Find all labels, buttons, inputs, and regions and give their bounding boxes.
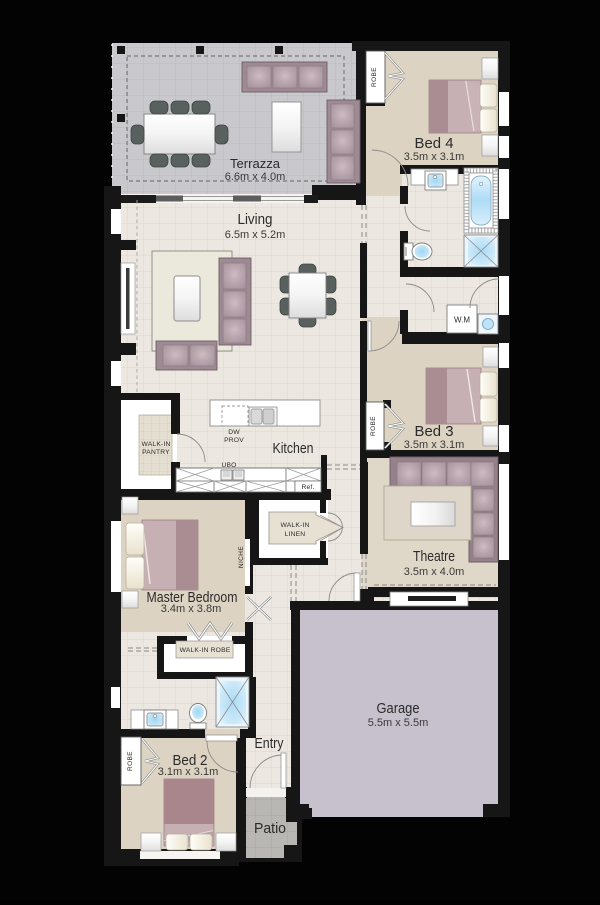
svg-text:PROV: PROV [224,437,244,444]
svg-text:Living: Living [238,211,273,228]
svg-text:3.4m x 3.8m: 3.4m x 3.8m [161,603,222,615]
svg-text:DW: DW [228,429,240,436]
svg-text:Terrazza: Terrazza [230,156,281,171]
svg-text:3.5m x 4.0m: 3.5m x 4.0m [404,566,465,578]
svg-text:W.M: W.M [454,316,470,325]
svg-text:LINEN: LINEN [285,531,306,538]
svg-text:5.5m x 5.5m: 5.5m x 5.5m [368,717,429,729]
svg-text:Garage: Garage [377,700,420,717]
svg-text:Bed 3: Bed 3 [415,423,454,440]
svg-text:Ref.: Ref. [301,484,314,491]
svg-text:WALK-IN: WALK-IN [280,522,309,529]
svg-text:WALK-IN: WALK-IN [141,441,170,448]
svg-text:Patio: Patio [254,820,286,837]
svg-text:ROBE: ROBE [370,416,377,436]
svg-text:6.5m x 5.2m: 6.5m x 5.2m [225,229,286,241]
svg-text:Entry: Entry [255,735,284,752]
svg-text:3.5m x 3.1m: 3.5m x 3.1m [404,439,465,451]
svg-text:ROBE: ROBE [371,67,378,87]
svg-text:UBO: UBO [221,462,236,469]
svg-text:6.6m x 4.0m: 6.6m x 4.0m [225,171,286,183]
svg-text:ROBE: ROBE [127,751,134,771]
svg-text:Theatre: Theatre [413,548,455,565]
svg-text:3.1m x 3.1m: 3.1m x 3.1m [158,766,219,778]
svg-text:Bed 4: Bed 4 [415,135,454,152]
svg-text:NICHE: NICHE [238,546,245,568]
svg-text:PANTRY: PANTRY [142,449,170,456]
svg-text:Kitchen: Kitchen [273,440,314,457]
svg-text:3.5m x 3.1m: 3.5m x 3.1m [404,151,465,163]
svg-text:WALK-IN ROBE: WALK-IN ROBE [180,647,231,654]
